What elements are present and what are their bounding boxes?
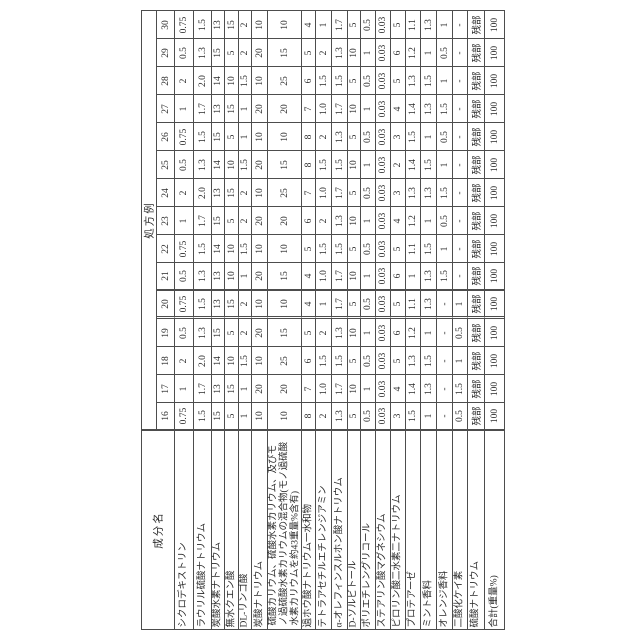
value-cell-text: 0.5: [440, 47, 450, 59]
value-cell-text: 1.3: [198, 270, 208, 282]
value-cell-text: 0.5: [363, 243, 373, 255]
example-number: 25: [157, 151, 175, 179]
value-cell: 13: [212, 11, 225, 39]
value-cell: 5: [302, 235, 316, 263]
value-cell: 6: [391, 263, 406, 291]
value-cell-text: 100: [490, 296, 500, 310]
value-cell-text: 15: [213, 216, 223, 226]
value-cell: -: [453, 235, 468, 263]
example-number-text: 16: [161, 411, 171, 421]
value-cell: 0.03: [376, 39, 391, 67]
value-cell: 残部: [468, 291, 485, 319]
value-cell-text: 1: [319, 301, 329, 306]
value-cell-text: 25: [280, 76, 290, 86]
value-cell-text: 20: [255, 160, 265, 170]
value-cell-text: 1.1: [408, 243, 418, 255]
value-cell: 1.2: [406, 39, 421, 67]
value-cell: 残部: [468, 347, 485, 375]
example-number: 23: [157, 207, 175, 235]
value-cell: 0.5: [175, 151, 194, 179]
value-cell: 1: [361, 263, 376, 291]
value-cell: 1: [421, 403, 437, 431]
value-cell: 残部: [468, 151, 485, 179]
value-cell-text: 1.2: [408, 47, 418, 59]
value-cell-text: 15: [280, 328, 290, 338]
value-cell-text: 0.03: [378, 100, 388, 117]
example-number: 21: [157, 263, 175, 291]
value-cell: 15: [225, 291, 239, 319]
value-cell-text: 0.75: [179, 16, 189, 33]
value-cell: 2: [316, 319, 332, 347]
value-cell-text: 0.5: [455, 410, 465, 422]
value-cell-text: 1.7: [198, 103, 208, 115]
value-cell: 1.5: [332, 67, 348, 95]
value-cell-text: 15: [227, 188, 237, 198]
value-cell-text: 1.3: [335, 215, 345, 227]
value-cell-text: 0.5: [363, 187, 373, 199]
value-cell-text: 14: [213, 244, 223, 254]
value-cell-text: 10: [349, 160, 359, 170]
value-cell-text: 15: [213, 411, 223, 421]
value-cell-text: 1.7: [335, 270, 345, 282]
component-name-cell: テトラアセチルエチレンジアミン: [316, 431, 332, 629]
value-cell: 5: [348, 11, 361, 39]
component-name-cell-text: 炭酸ナトリウム: [254, 561, 265, 628]
value-cell: 100: [485, 263, 504, 291]
example-number: 17: [157, 375, 175, 403]
value-cell-text: 5: [349, 78, 359, 83]
component-name-cell: 硫酸ナトリウム: [468, 431, 485, 629]
value-cell-text: 2.0: [198, 355, 208, 367]
value-cell: 残部: [468, 263, 485, 291]
example-number: 16: [157, 403, 175, 431]
value-cell: 1.4: [406, 151, 421, 179]
example-number: 19: [157, 319, 175, 347]
example-number-text: 22: [161, 244, 171, 254]
component-name-cell: ステアリン酸マグネシウム: [376, 431, 391, 629]
value-cell: 残部: [468, 375, 485, 403]
example-number-text: 21: [161, 271, 171, 281]
value-cell-text: 残部: [469, 379, 483, 398]
value-cell-text: -: [440, 414, 450, 417]
value-cell-text: 1: [240, 386, 250, 391]
value-cell-text: 1.4: [408, 159, 418, 171]
value-cell-text: 1.4: [408, 103, 418, 115]
value-cell: 15: [212, 319, 225, 347]
value-cell: 1.7: [194, 375, 212, 403]
value-cell: 1.5: [437, 263, 453, 291]
value-cell-text: 20: [255, 48, 265, 58]
value-cell-text: 14: [213, 356, 223, 366]
value-cell-text: 15: [280, 160, 290, 170]
value-cell: 残部: [468, 179, 485, 207]
value-cell-text: 5: [349, 358, 359, 363]
value-cell: 6: [391, 319, 406, 347]
value-cell-text: 10: [227, 76, 237, 86]
value-cell-text: 0.5: [179, 159, 189, 171]
value-cell-text: 1: [408, 274, 418, 279]
value-cell-text: 1.3: [408, 75, 418, 87]
value-cell-text: 0.03: [378, 324, 388, 341]
value-cell: 10: [252, 11, 268, 39]
value-cell-text: 1: [319, 22, 329, 27]
value-cell: 100: [485, 67, 504, 95]
value-cell-text: 5: [227, 218, 237, 223]
value-cell: 1.7: [332, 95, 348, 123]
value-cell: 1.3: [421, 375, 437, 403]
value-cell: 0.5: [361, 179, 376, 207]
component-name-cell: 硫酸カリウム、硫酸水素カリウム、及びモノ過硫酸水素カリウムの混合物(モノ過硫酸水…: [268, 431, 302, 629]
value-cell: 1.5: [194, 291, 212, 319]
value-cell: 残部: [468, 11, 485, 39]
value-cell: 1.5: [239, 67, 252, 95]
value-cell-text: 10: [280, 411, 290, 421]
value-cell: 10: [268, 235, 302, 263]
value-cell-text: 残部: [469, 266, 483, 285]
value-cell-text: 2: [319, 414, 329, 419]
value-cell: 2: [239, 39, 252, 67]
value-cell-text: 10: [280, 132, 290, 142]
value-cell-text: 残部: [469, 323, 483, 342]
value-cell: 1: [239, 123, 252, 151]
value-cell-text: -: [440, 302, 450, 305]
value-cell: 1: [239, 403, 252, 431]
value-cell-text: 0.5: [363, 355, 373, 367]
value-cell: 2: [239, 179, 252, 207]
formulation-table: 処方例 成分名 300.751.5131521010411.750.50.035…: [141, 10, 505, 630]
component-name-cell-text: シクロデキストリン: [179, 542, 190, 627]
value-cell-text: 13: [213, 104, 223, 114]
value-cell-text: 15: [213, 48, 223, 58]
value-cell-text: 2: [393, 162, 403, 167]
value-cell: -: [437, 347, 453, 375]
value-cell: 1.5: [316, 67, 332, 95]
value-cell-text: 4: [304, 274, 314, 279]
value-cell: 1.5: [194, 123, 212, 151]
value-cell-text: 5: [349, 414, 359, 419]
value-cell: -: [453, 151, 468, 179]
value-cell: 6: [302, 347, 316, 375]
value-cell: 0.5: [453, 319, 468, 347]
value-cell-text: 100: [490, 241, 500, 255]
value-cell-text: 1: [363, 386, 373, 391]
value-cell-text: 14: [213, 76, 223, 86]
example-number: 28: [157, 67, 175, 95]
component-name-cell-text: ポリエチレングリコール: [363, 523, 374, 628]
component-name-cell: 炭酸ナトリウム: [252, 431, 268, 629]
value-cell: 1.3: [406, 67, 421, 95]
value-cell: 10: [252, 67, 268, 95]
value-cell-text: 3: [393, 414, 403, 419]
value-cell: 10: [225, 151, 239, 179]
value-cell-text: 0.75: [179, 408, 189, 425]
value-cell: 7: [302, 179, 316, 207]
example-number-text: 30: [161, 20, 171, 30]
value-cell: 15: [225, 179, 239, 207]
value-cell-text: 20: [255, 271, 265, 281]
value-cell-text: 100: [490, 213, 500, 227]
value-cell-text: 1: [240, 106, 250, 111]
value-cell: 1.5: [437, 179, 453, 207]
example-number: 29: [157, 39, 175, 67]
value-cell: 1.4: [406, 375, 421, 403]
value-cell-text: 1.5: [424, 355, 434, 367]
value-cell: 1.1: [406, 11, 421, 39]
value-cell-text: -: [440, 331, 450, 334]
value-cell: 0.03: [376, 151, 391, 179]
value-cell-text: 10: [349, 384, 359, 394]
example-number-text: 18: [161, 356, 171, 366]
value-cell-text: 1: [424, 414, 434, 419]
value-cell: 10: [252, 235, 268, 263]
value-cell: 2: [175, 67, 194, 95]
component-name-cell-text: 無水クエン酸: [226, 570, 237, 627]
value-cell-text: -: [455, 79, 465, 82]
example-number-text: 28: [161, 76, 171, 86]
value-cell-text: 0.03: [378, 295, 388, 312]
value-cell: 1: [175, 95, 194, 123]
value-cell-text: 5: [393, 358, 403, 363]
value-cell-text: 20: [255, 384, 265, 394]
value-cell: 残部: [468, 123, 485, 151]
value-cell: 1: [437, 235, 453, 263]
value-cell: 1: [421, 319, 437, 347]
value-cell-text: 0.5: [179, 47, 189, 59]
value-cell: 4: [302, 263, 316, 291]
component-name-cell-text: テトラアセチルエチレンジアミン: [318, 485, 329, 627]
component-name-cell: シクロデキストリン: [175, 431, 194, 629]
component-name-cell: プロテアーゼ: [406, 431, 421, 629]
value-cell: 0.5: [175, 39, 194, 67]
prescription-examples-label: 処方例: [142, 201, 157, 239]
value-cell: 1.3: [332, 403, 348, 431]
value-cell: 残部: [468, 403, 485, 431]
value-cell: 1.5: [453, 375, 468, 403]
value-cell-text: 1.5: [319, 159, 329, 171]
example-number: 20: [157, 291, 175, 319]
value-cell-text: 1.3: [335, 131, 345, 143]
value-cell: 1.5: [316, 151, 332, 179]
value-cell: 1.3: [406, 347, 421, 375]
value-cell: 0.5: [437, 39, 453, 67]
value-cell-text: 1.4: [408, 383, 418, 395]
value-cell: 2.0: [194, 67, 212, 95]
value-cell: 20: [268, 207, 302, 235]
component-name-cell-text: ラウリル硫酸ナトリウム: [197, 523, 208, 628]
value-cell-text: 1.5: [424, 243, 434, 255]
value-cell: 13: [212, 179, 225, 207]
value-cell-text: 1.5: [198, 410, 208, 422]
value-cell-text: 6: [304, 218, 314, 223]
value-cell-text: -: [440, 359, 450, 362]
value-cell: 10: [225, 347, 239, 375]
value-cell-text: -: [455, 191, 465, 194]
value-cell-text: -: [455, 219, 465, 222]
value-cell-text: 5: [393, 78, 403, 83]
value-cell-text: 15: [227, 104, 237, 114]
value-cell: 5: [302, 319, 316, 347]
value-cell-text: 1.3: [424, 103, 434, 115]
value-cell-text: 2.0: [198, 187, 208, 199]
value-cell-text: 1.5: [335, 159, 345, 171]
value-cell-text: 6: [393, 50, 403, 55]
value-cell-text: 13: [213, 20, 223, 30]
value-cell-text: 5: [304, 246, 314, 251]
value-cell-text: 1.3: [424, 19, 434, 31]
value-cell-text: 100: [490, 381, 500, 395]
value-cell: 20: [252, 263, 268, 291]
value-cell-text: 2: [179, 78, 189, 83]
value-cell-text: 1: [179, 218, 189, 223]
value-cell: -: [453, 39, 468, 67]
value-cell: 14: [212, 347, 225, 375]
component-name-cell: 無水クエン酸: [225, 431, 239, 629]
value-cell: 1.3: [194, 151, 212, 179]
value-cell: 10: [268, 11, 302, 39]
value-cell-text: 5: [349, 301, 359, 306]
value-cell-text: 4: [304, 22, 314, 27]
value-cell: 1.5: [316, 347, 332, 375]
value-cell: 0.03: [376, 179, 391, 207]
value-cell-text: 1: [240, 414, 250, 419]
value-cell: 1.3: [421, 263, 437, 291]
example-number: 22: [157, 235, 175, 263]
value-cell-text: 1: [440, 22, 450, 27]
value-cell: 1.5: [239, 151, 252, 179]
value-cell: 13: [212, 375, 225, 403]
value-cell: 残部: [468, 39, 485, 67]
value-cell: 2: [239, 291, 252, 319]
value-cell: 100: [485, 291, 504, 319]
value-cell-text: 2: [240, 50, 250, 55]
value-cell-text: 4: [393, 106, 403, 111]
value-cell: 1.5: [406, 123, 421, 151]
value-cell-text: 1: [440, 78, 450, 83]
value-cell-text: 4: [393, 386, 403, 391]
value-cell-text: 0.5: [363, 298, 373, 310]
component-name-cell-text: ピロリン酸二水素二ナトリウム: [393, 494, 404, 627]
value-cell-text: 0.75: [179, 240, 189, 257]
component-name-cell-text: プロテアーゼ: [408, 571, 419, 627]
value-cell-text: 1.5: [198, 243, 208, 255]
value-cell: 10: [268, 123, 302, 151]
example-number-text: 23: [161, 216, 171, 226]
value-cell: 25: [268, 347, 302, 375]
example-number-text: 20: [161, 299, 171, 309]
value-cell: 100: [485, 207, 504, 235]
value-cell: 4: [391, 375, 406, 403]
example-number-text: 25: [161, 160, 171, 170]
value-cell-text: 25: [280, 188, 290, 198]
value-cell-text: 10: [280, 20, 290, 30]
value-cell-text: -: [455, 107, 465, 110]
value-cell-text: 10: [255, 188, 265, 198]
value-cell: 14: [212, 235, 225, 263]
value-cell-text: 13: [213, 299, 223, 309]
value-cell: 1.7: [194, 207, 212, 235]
value-cell: 0.03: [376, 263, 391, 291]
value-cell-text: 0.03: [378, 44, 388, 61]
value-cell-text: 1.3: [198, 327, 208, 339]
value-cell: 100: [485, 179, 504, 207]
value-cell-text: 1: [455, 301, 465, 306]
component-name-cell: 炭酸水素ナトリウム: [212, 431, 225, 629]
value-cell-text: 100: [490, 45, 500, 59]
value-cell: 20: [268, 375, 302, 403]
value-cell: 10: [225, 235, 239, 263]
value-cell: 1.5: [239, 235, 252, 263]
value-cell: 20: [252, 151, 268, 179]
value-cell-text: 1.5: [408, 410, 418, 422]
value-cell-text: 3: [393, 190, 403, 195]
value-cell: 0.03: [376, 207, 391, 235]
value-cell: 8: [302, 123, 316, 151]
value-cell: 1.1: [406, 291, 421, 319]
value-cell: 1: [361, 95, 376, 123]
value-cell-text: 0.03: [378, 72, 388, 89]
value-cell-text: 1.3: [424, 383, 434, 395]
value-cell: 1.4: [406, 95, 421, 123]
value-cell-text: 20: [255, 104, 265, 114]
value-cell-text: 5: [349, 190, 359, 195]
value-cell-text: 1: [363, 218, 373, 223]
value-cell-text: 7: [304, 190, 314, 195]
value-cell: 1.3: [194, 39, 212, 67]
value-cell: 100: [485, 319, 504, 347]
value-cell-text: 1: [363, 162, 373, 167]
value-cell-text: 13: [213, 271, 223, 281]
value-cell: 1.5: [332, 151, 348, 179]
value-cell-text: 1.1: [408, 298, 418, 310]
value-cell-text: 100: [490, 185, 500, 199]
example-number: 24: [157, 179, 175, 207]
value-cell: 1.5: [421, 151, 437, 179]
value-cell-text: 残部: [469, 99, 483, 118]
value-cell-text: 1.3: [335, 327, 345, 339]
value-cell: 1: [421, 207, 437, 235]
value-cell-text: 1.5: [335, 243, 345, 255]
value-cell: 1.7: [332, 263, 348, 291]
example-number: 30: [157, 11, 175, 39]
value-cell-text: 8: [304, 134, 314, 139]
example-number-text: 29: [161, 48, 171, 58]
value-cell-text: 0.03: [378, 128, 388, 145]
value-cell-text: 残部: [469, 211, 483, 230]
value-cell: 15: [212, 207, 225, 235]
value-cell: 残部: [468, 207, 485, 235]
value-cell: 6: [391, 39, 406, 67]
value-cell-text: 1.0: [319, 187, 329, 199]
value-cell: 1.3: [332, 123, 348, 151]
value-cell: 1.5: [332, 347, 348, 375]
value-cell-text: 5: [393, 246, 403, 251]
value-cell-text: 2: [319, 50, 329, 55]
component-name-cell-text: D-ソルビトール: [349, 560, 360, 627]
value-cell: 0.03: [376, 67, 391, 95]
value-cell: 5: [391, 347, 406, 375]
value-cell-text: 10: [255, 411, 265, 421]
value-cell-text: 残部: [469, 294, 483, 313]
value-cell-text: 15: [213, 328, 223, 338]
value-cell: 1: [361, 151, 376, 179]
value-cell-text: 1.5: [319, 243, 329, 255]
value-cell-text: 6: [304, 358, 314, 363]
value-cell-text: 5: [227, 330, 237, 335]
value-cell-text: 10: [255, 132, 265, 142]
value-cell-text: 1.7: [335, 103, 345, 115]
value-cell-text: 1: [363, 330, 373, 335]
value-cell: 5: [225, 403, 239, 431]
